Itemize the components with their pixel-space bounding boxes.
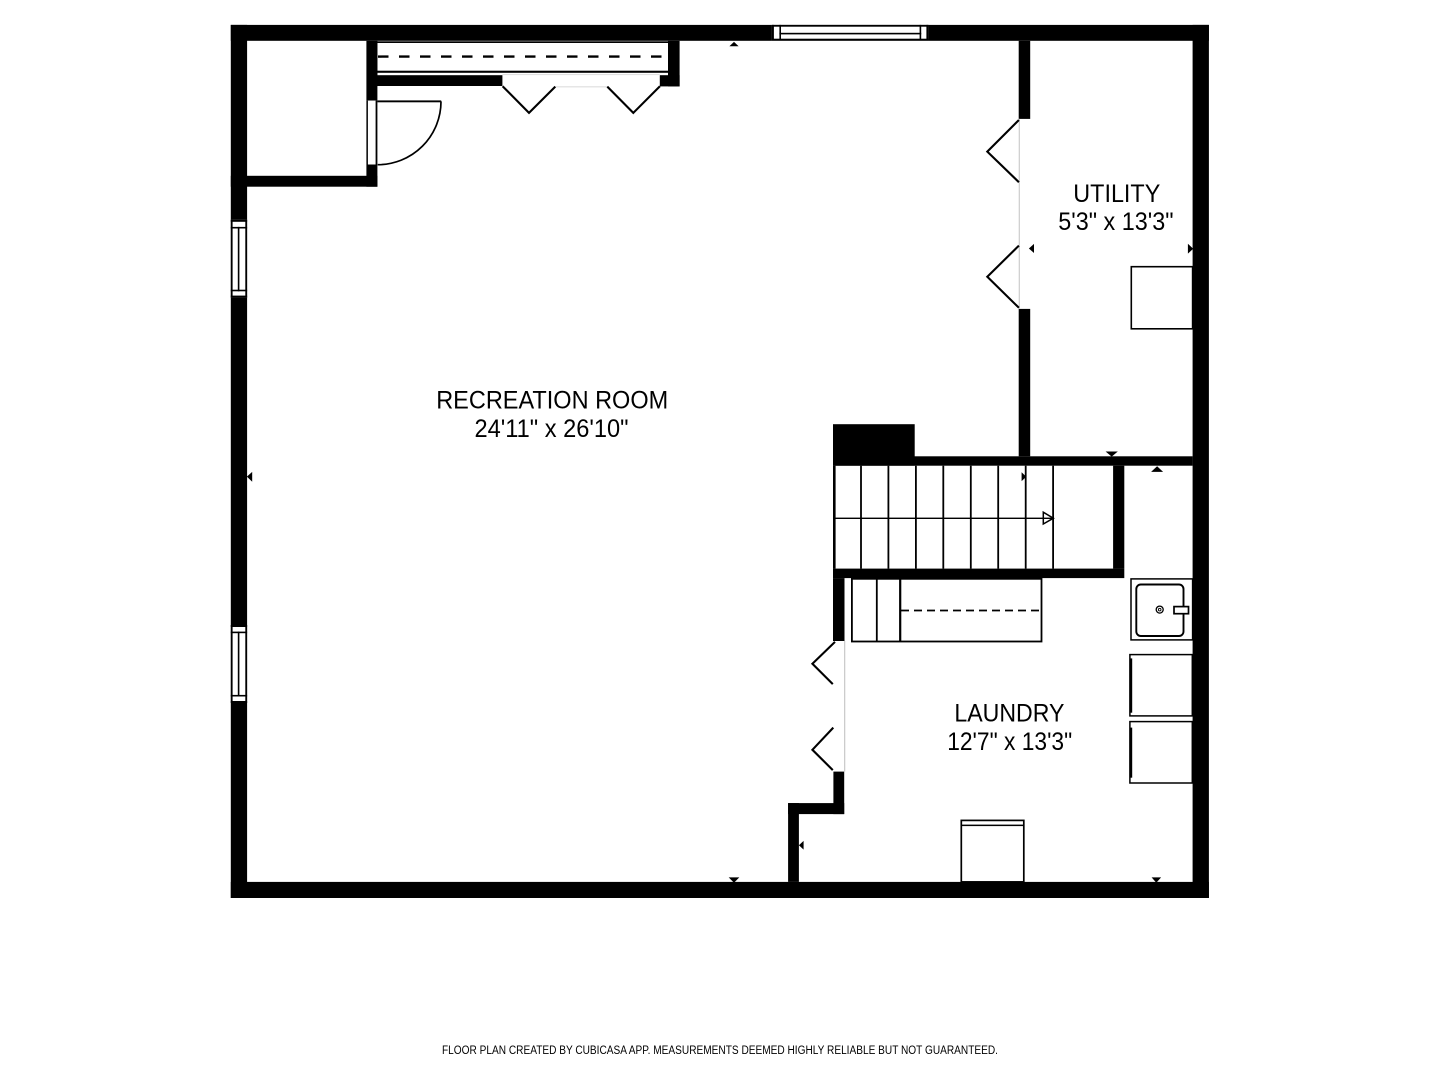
svg-text:12'7" x 13'3": 12'7" x 13'3" xyxy=(947,728,1072,756)
svg-text:FLOOR PLAN CREATED BY CUBICASA: FLOOR PLAN CREATED BY CUBICASA APP. MEAS… xyxy=(442,1043,998,1057)
svg-text:5'3" x 13'3": 5'3" x 13'3" xyxy=(1058,208,1173,236)
svg-text:24'11" x 26'10": 24'11" x 26'10" xyxy=(475,415,629,443)
svg-text:LAUNDRY: LAUNDRY xyxy=(954,700,1064,728)
svg-text:RECREATION ROOM: RECREATION ROOM xyxy=(436,386,668,414)
svg-text:UTILITY: UTILITY xyxy=(1073,180,1160,208)
